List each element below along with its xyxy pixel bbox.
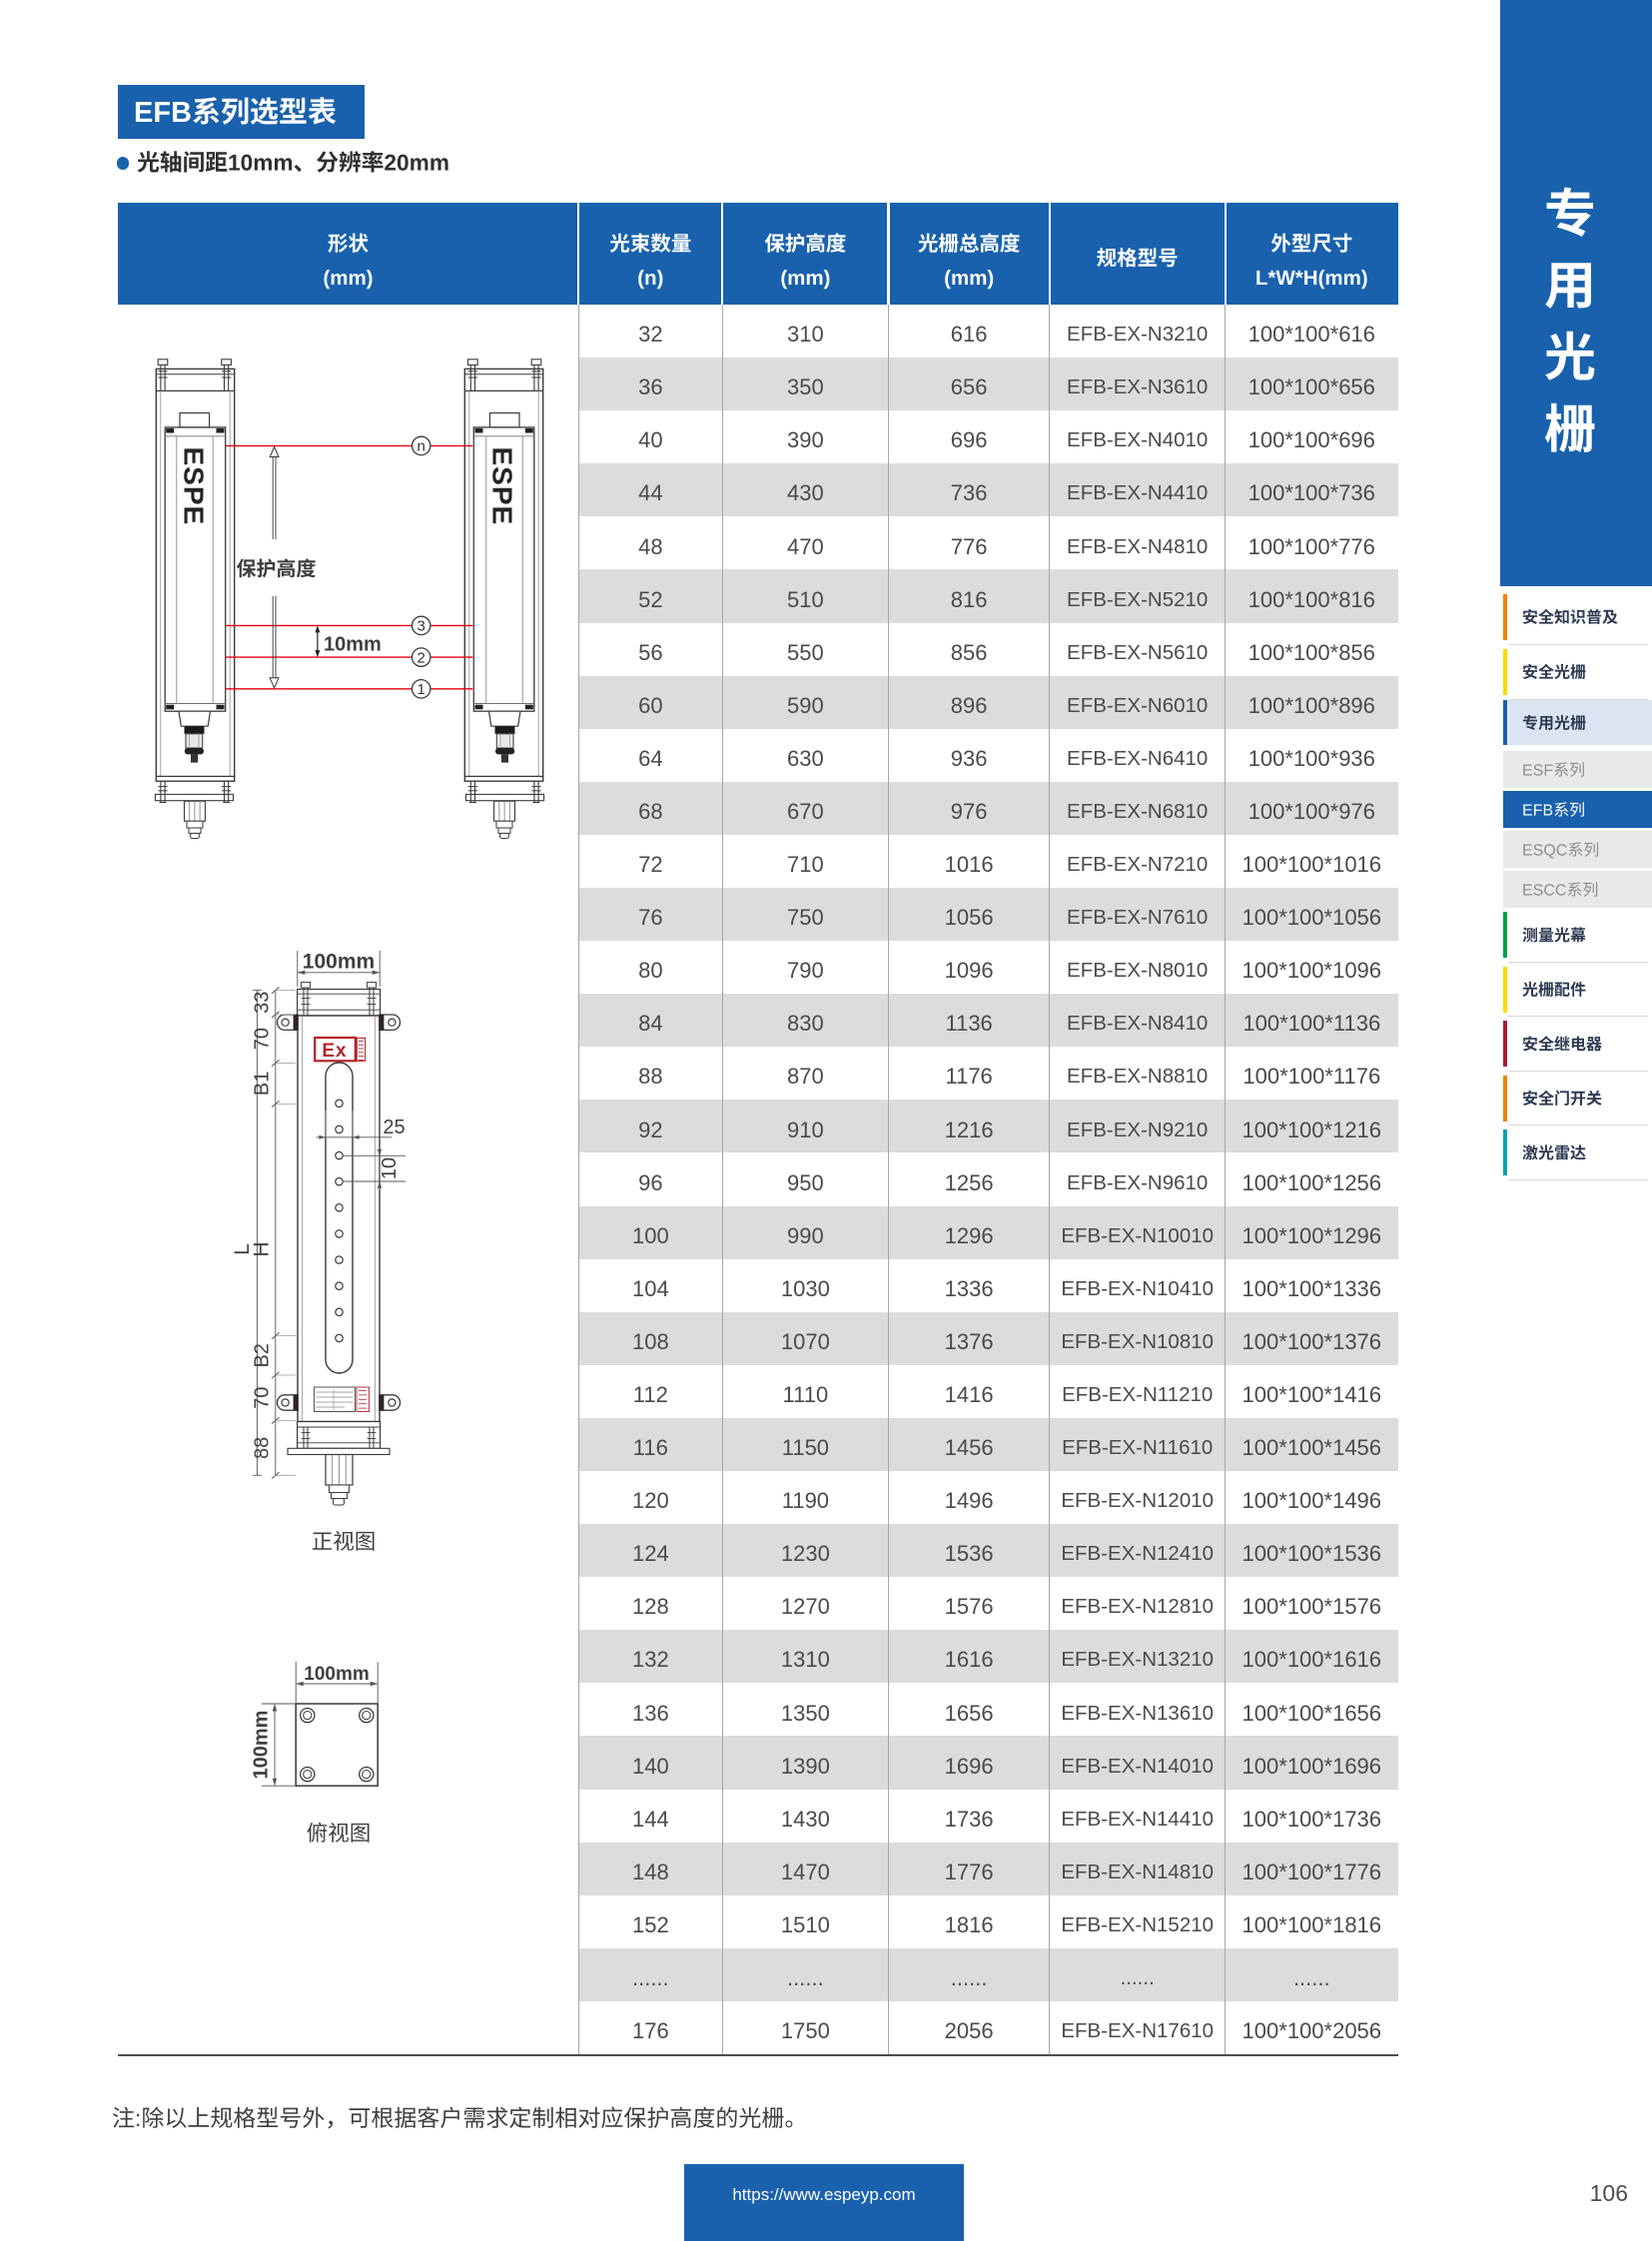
svg-text:100mm: 100mm [304, 1664, 370, 1685]
svg-text:1: 1 [417, 681, 425, 698]
svg-text:B2: B2 [252, 1343, 274, 1367]
svg-text:25: 25 [383, 1117, 405, 1138]
svg-text:70: 70 [252, 1387, 274, 1409]
svg-text:ESPE: ESPE [179, 447, 210, 526]
svg-text:2: 2 [417, 649, 425, 666]
svg-text:ESPE: ESPE [487, 447, 518, 526]
svg-text:H: H [251, 1241, 274, 1256]
svg-text:10mm: 10mm [324, 634, 382, 656]
svg-text:n: n [417, 438, 425, 455]
svg-text:33: 33 [252, 992, 274, 1014]
svg-text:100mm: 100mm [303, 951, 375, 974]
svg-text:10: 10 [379, 1157, 401, 1179]
svg-text:100mm: 100mm [251, 1711, 273, 1780]
svg-text:Ex: Ex [322, 1041, 347, 1062]
svg-text:88: 88 [252, 1437, 274, 1459]
svg-text:B1: B1 [252, 1072, 274, 1096]
svg-text:70: 70 [252, 1028, 274, 1050]
svg-text:3: 3 [417, 618, 425, 635]
